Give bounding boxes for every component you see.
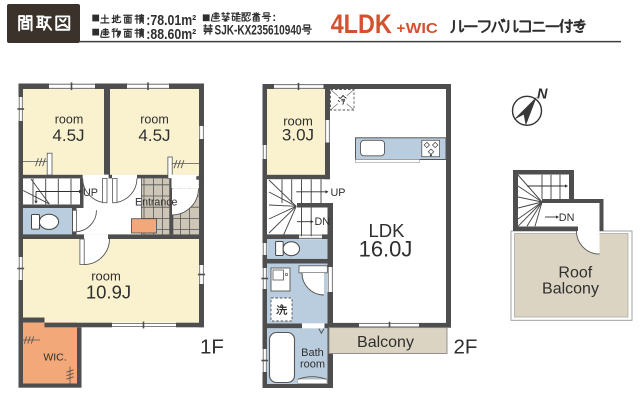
svg-text:Bath: Bath: [301, 347, 324, 359]
svg-text:4LDK: 4LDK: [331, 9, 392, 39]
svg-text:WIC: WIC: [406, 21, 439, 37]
svg-text:UP: UP: [83, 187, 98, 199]
svg-text:Balcony: Balcony: [357, 334, 414, 351]
svg-text:DN: DN: [559, 212, 575, 224]
svg-text:room: room: [140, 113, 168, 127]
svg-text:4.5J: 4.5J: [138, 126, 170, 145]
svg-text:4.5J: 4.5J: [52, 126, 84, 145]
svg-text::88.60m²: :88.60m²: [146, 27, 196, 43]
svg-text:SJK-KX235610940: SJK-KX235610940: [215, 22, 302, 37]
svg-text:Balcony: Balcony: [542, 281, 599, 298]
svg-text:+: +: [397, 20, 406, 37]
svg-text:16.0J: 16.0J: [359, 237, 413, 262]
svg-text:1F: 1F: [200, 336, 224, 359]
svg-text:DN: DN: [315, 216, 331, 228]
svg-text:3.0J: 3.0J: [282, 125, 314, 144]
svg-text:N: N: [537, 87, 548, 103]
svg-text:Roof: Roof: [558, 265, 592, 282]
svg-text:room: room: [300, 359, 325, 371]
svg-text:UP: UP: [331, 187, 346, 199]
svg-text:WIC.: WIC.: [43, 351, 66, 363]
svg-text:Entrance: Entrance: [135, 197, 178, 209]
svg-text:2F: 2F: [454, 336, 478, 359]
svg-text:room: room: [55, 113, 83, 127]
svg-text:10.9J: 10.9J: [86, 281, 131, 302]
